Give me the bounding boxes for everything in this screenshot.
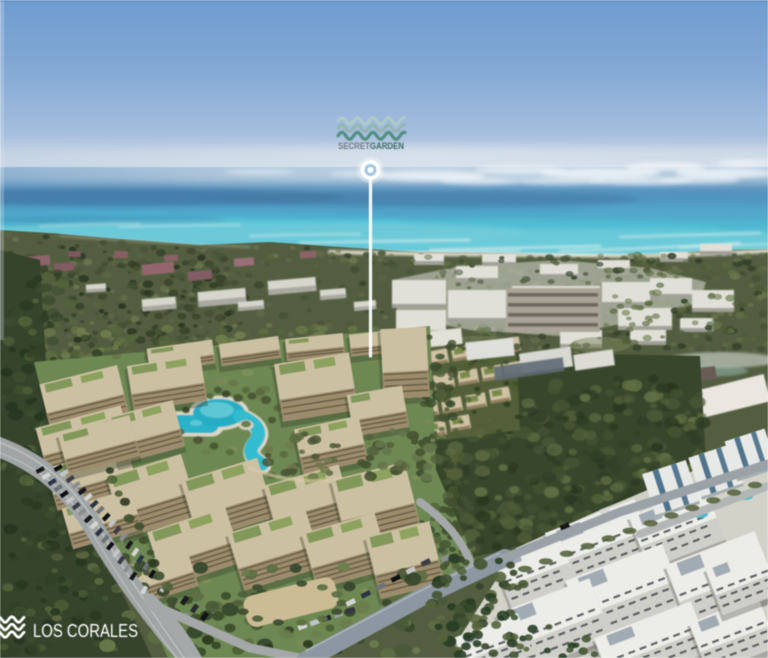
svg-text:SECRETGARDEN: SECRETGARDEN xyxy=(338,141,404,151)
svg-text:LOS CORALES: LOS CORALES xyxy=(33,620,138,641)
